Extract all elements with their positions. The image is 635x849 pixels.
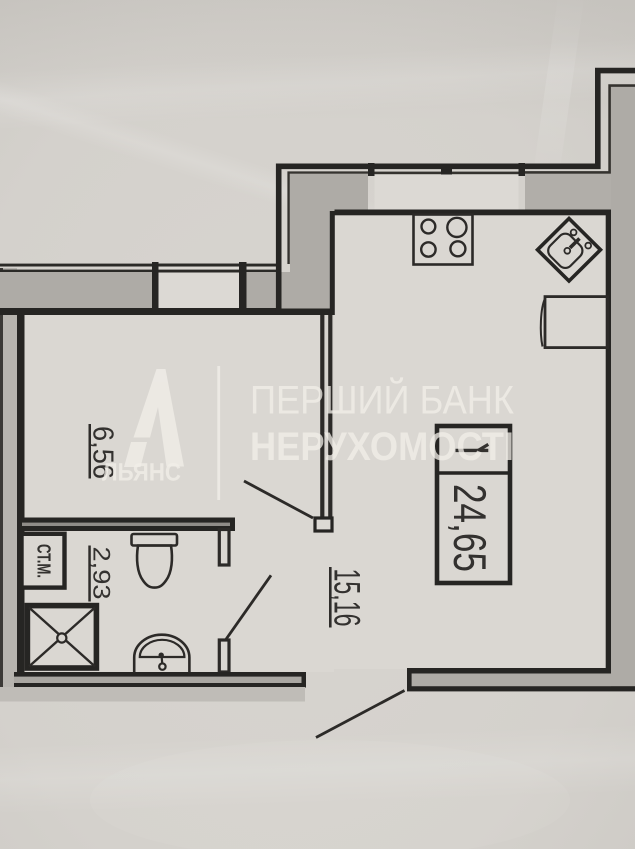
svg-text:ЛЬЯНС: ЛЬЯНС xyxy=(102,459,181,487)
svg-text:2,93: 2,93 xyxy=(88,547,115,600)
svg-text:15,16: 15,16 xyxy=(327,569,368,627)
svg-text:СТ.М.: СТ.М. xyxy=(33,544,54,578)
svg-text:ПЕРШИЙ БАНК: ПЕРШИЙ БАНК xyxy=(250,377,515,423)
svg-text:24,65: 24,65 xyxy=(444,484,496,572)
svg-text:НЕРУХОМОСТІ: НЕРУХОМОСТІ xyxy=(250,425,514,469)
